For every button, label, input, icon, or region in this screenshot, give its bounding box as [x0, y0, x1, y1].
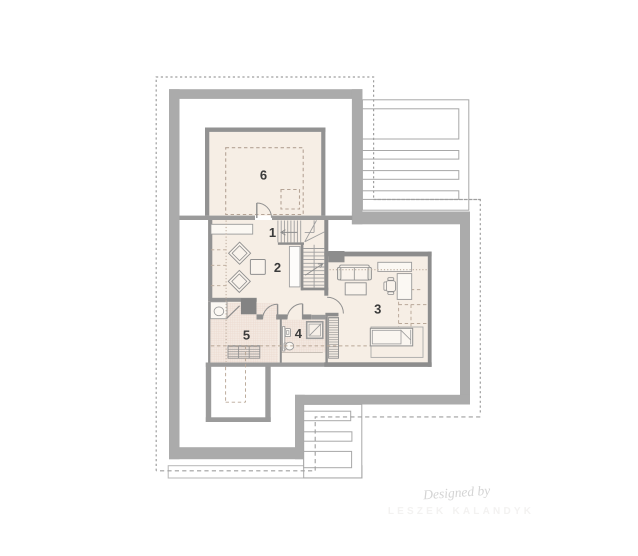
svg-text:4: 4	[295, 326, 303, 341]
svg-text:1: 1	[269, 225, 276, 240]
svg-text:5: 5	[243, 327, 250, 342]
svg-text:3: 3	[374, 302, 381, 317]
svg-text:LESZEK KALANDYK: LESZEK KALANDYK	[388, 506, 534, 517]
svg-text:6: 6	[260, 167, 267, 182]
svg-text:2: 2	[274, 260, 281, 275]
